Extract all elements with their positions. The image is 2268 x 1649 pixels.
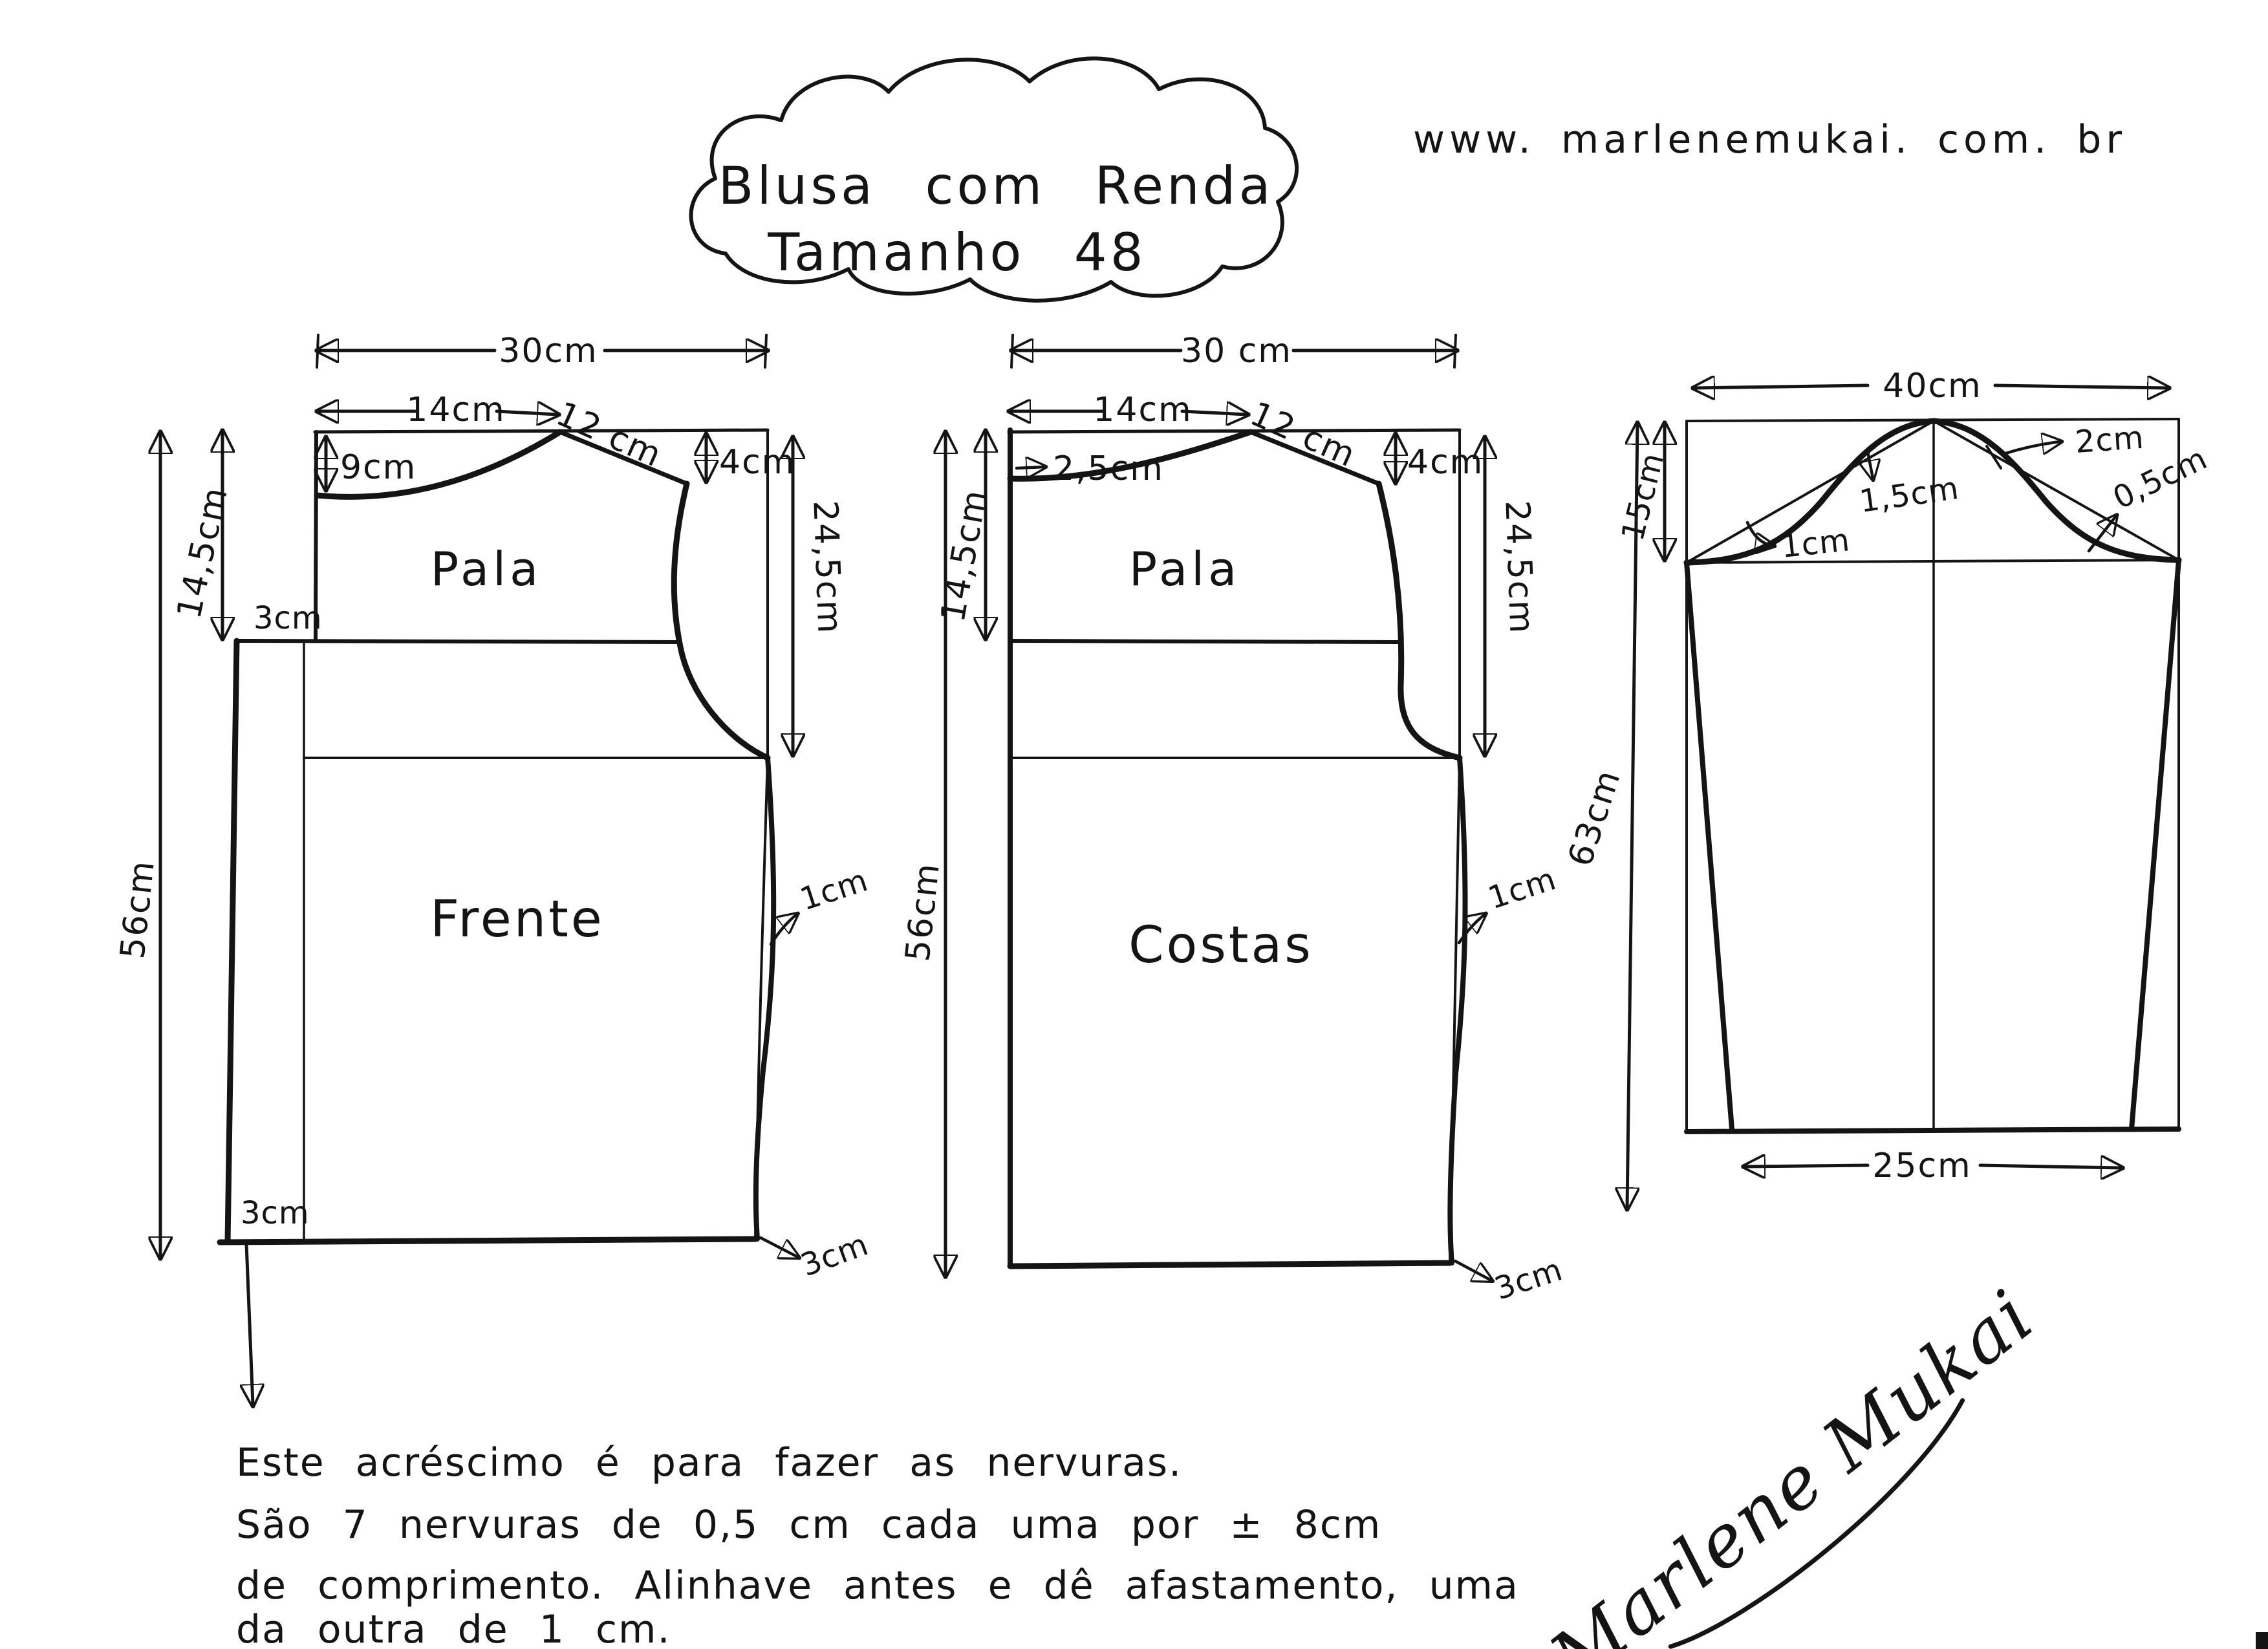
front-width-label: 30cm: [499, 332, 598, 371]
front-yoke-line: [237, 641, 679, 642]
front-neck-depth-label: 9cm: [340, 448, 416, 487]
back-length-label: 56cm: [898, 861, 947, 964]
back-side-curve-label: 1cm: [1484, 861, 1561, 916]
sleeve-width-arrow-left: [1694, 385, 1868, 388]
sleeve-length-label: 63cm: [1561, 765, 1628, 871]
back-yoke-name: Pala: [1129, 542, 1240, 596]
front-left-edge: [228, 641, 237, 1242]
front-armhole-depth-label: 24,5cm: [805, 500, 848, 635]
sleeve-side-seam-right: [2132, 560, 2179, 1129]
note-line-4: da outra de 1 cm.: [236, 1607, 671, 1649]
front-hem-right-label: 3cm: [796, 1226, 873, 1284]
sleeve-width-label: 40cm: [1883, 367, 1982, 405]
back-yoke-line: [1010, 641, 1399, 642]
back-neck-depth-arrow: [1017, 467, 1044, 468]
back-hem-line: [1010, 1263, 1450, 1266]
front-side-curve-label: 1cm: [795, 862, 872, 918]
pattern-sheet: Blusa com Renda Tamanho 48 www. marlenem…: [0, 0, 2268, 1649]
title-cloud: Blusa com Renda Tamanho 48: [691, 58, 1297, 301]
front-shoulder-label: 12 cm: [550, 394, 667, 475]
website-url: www. marlenemukai. com. br: [1413, 117, 2126, 162]
back-neck-width-label: 14cm: [1093, 391, 1192, 429]
front-note-arrow: [246, 1244, 253, 1405]
front-hem-left-label: 3cm: [241, 1195, 310, 1231]
back-piece: 30 cm 14cm 2,5cm 12 cm 4cm 24,5cm 14,5cm: [898, 332, 1567, 1307]
front-yoke-offset-label: 3cm: [254, 600, 323, 636]
sleeve-cap-height-label: 15cm: [1615, 449, 1672, 544]
sleeve-hem-arrow-left: [1745, 1165, 1868, 1167]
back-shoulder-drop-label: 4cm: [1407, 443, 1484, 482]
sleeve-length-arrow: [1627, 424, 1637, 1208]
sleeve-hem-arrow-right: [1980, 1165, 2121, 1168]
front-length-label: 56cm: [113, 858, 162, 961]
sleeve-width-arrow-right: [1995, 385, 2168, 388]
front-top-edge: [315, 430, 768, 432]
note-line-2: São 7 nervuras de 0,5 cm cada uma por ± …: [236, 1502, 1381, 1547]
front-yoke-name: Pala: [431, 542, 542, 596]
sleeve-back-ease-arrow: [2003, 442, 2060, 454]
back-piece-name: Costas: [1129, 916, 1313, 975]
back-armhole-curve: [1379, 484, 1460, 758]
front-yoke-height-label: 14,5cm: [170, 483, 236, 622]
front-neck-width-label: 14cm: [406, 391, 505, 429]
front-neck-width-arrow-right: [497, 411, 557, 415]
front-shoulder-drop-label: 4cm: [719, 443, 795, 482]
front-hem-right-arrow: [761, 1238, 798, 1257]
note-line-1: Este acréscimo é para fazer as nervuras.: [236, 1440, 1182, 1485]
sleeve-front-notch-label: 1cm: [1779, 522, 1852, 565]
sleeve-hem-line: [1687, 1129, 2179, 1132]
note-line-3: de comprimento. Alinhave antes e dê afas…: [236, 1563, 1519, 1608]
notes-block: Este acréscimo é para fazer as nervuras.…: [236, 1440, 1519, 1649]
front-width-tick-right: [765, 335, 766, 367]
back-hem-right-arrow: [1455, 1261, 1491, 1280]
front-armhole-curve: [674, 484, 768, 758]
back-width-tick-left: [1011, 335, 1013, 367]
signature-text: Marlene Mukai: [1534, 1274, 2049, 1649]
back-hem-right-label: 3cm: [1490, 1251, 1567, 1307]
front-piece: 30cm 14cm 9cm 12 cm 4cm 24,5cm 3cm 14,5c…: [113, 332, 873, 1405]
back-armhole-depth-label: 24,5cm: [1497, 500, 1540, 635]
back-width-tick-right: [1454, 335, 1456, 367]
sleeve-bicep-line: [1687, 560, 2179, 563]
back-width-label: 30 cm: [1181, 332, 1292, 371]
pattern-title-line2: Tamanho 48: [767, 222, 1146, 283]
sleeve-side-seam-left: [1687, 563, 1732, 1129]
sleeve-hem-width-label: 25cm: [1872, 1147, 1971, 1185]
pattern-title-line1: Blusa com Renda: [718, 156, 1274, 216]
back-shoulder-label: 12 cm: [1244, 394, 1361, 475]
scan-corner-mark: [2256, 1632, 2268, 1649]
pattern-drawing: Blusa com Renda Tamanho 48 www. marlenem…: [0, 0, 2268, 1649]
front-piece-name: Frente: [430, 890, 605, 949]
front-width-tick-left: [317, 335, 318, 367]
sleeve-back-ease-label: 2cm: [2074, 420, 2145, 460]
signature: Marlene Mukai: [1534, 1274, 2067, 1649]
back-top-edge: [1009, 430, 1460, 432]
front-hem-line: [220, 1239, 755, 1242]
sleeve-piece: 40cm 15cm 63cm 1cm 1,5cm 2cm 0,5cm: [1561, 367, 2214, 1208]
